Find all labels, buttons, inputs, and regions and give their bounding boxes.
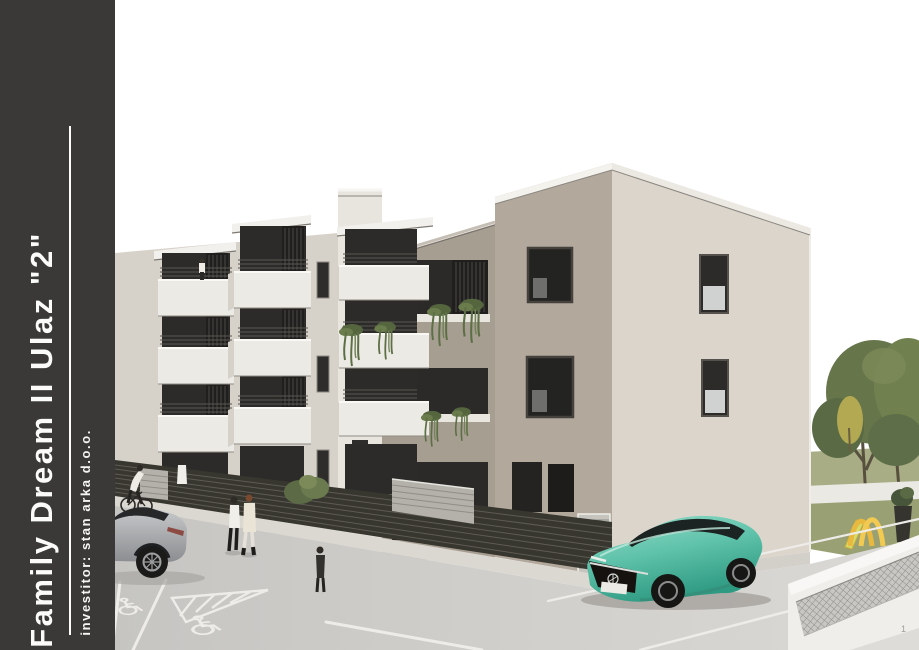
- render-svg: [115, 0, 919, 650]
- slide-page: Family Dream II Ulaz "2" investitor: sta…: [0, 0, 919, 650]
- balcony-stack-1: [152, 242, 236, 492]
- balcony-stack-2: [228, 215, 311, 490]
- building-render: [115, 0, 919, 650]
- sidebar-divider: [69, 126, 71, 635]
- sidebar: Family Dream II Ulaz "2" investitor: sta…: [0, 0, 115, 650]
- facade-windows: [317, 262, 329, 486]
- investor-label: investitor: stan arka d.o.o.: [78, 429, 93, 636]
- page-number: 1: [901, 624, 906, 634]
- project-title: Family Dream II Ulaz "2": [24, 231, 60, 648]
